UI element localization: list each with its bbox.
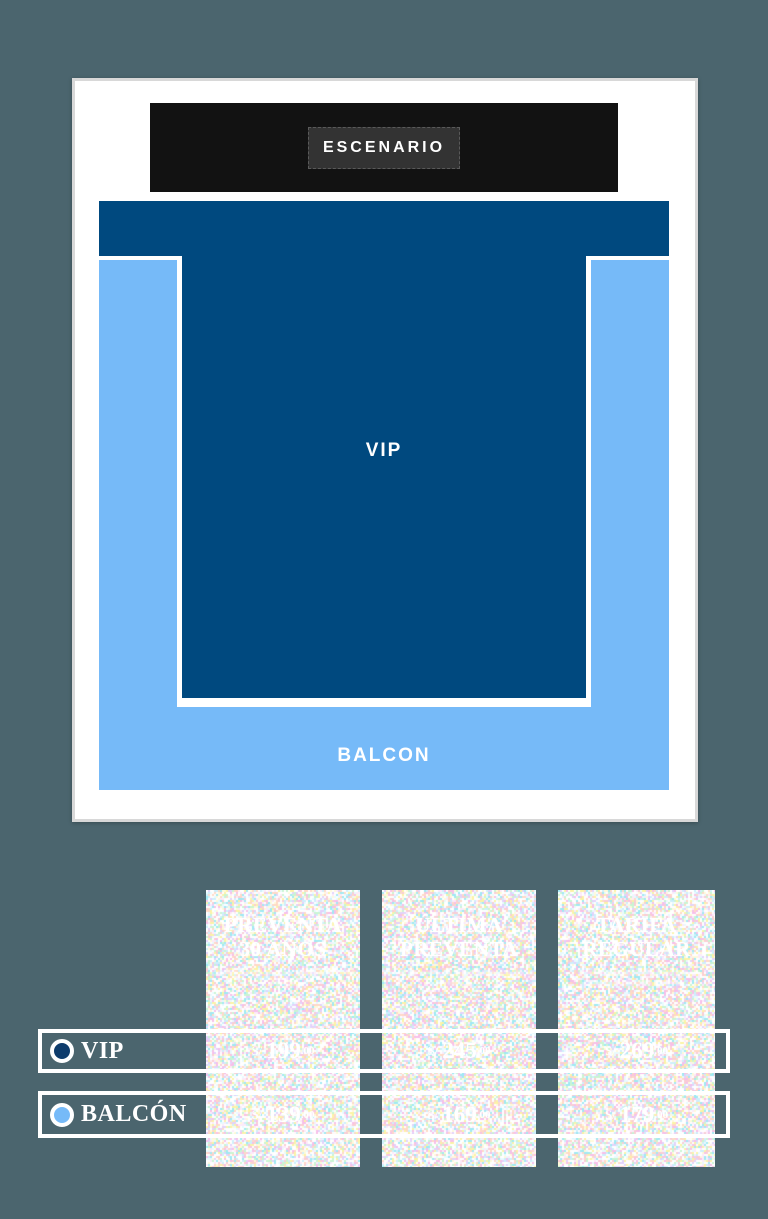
price-cents: .00 bbox=[301, 1045, 315, 1057]
tier-title: ÚLTIMA PREVENTA bbox=[382, 914, 536, 962]
price-vip-regular: S/ 269 .00 bbox=[558, 1033, 715, 1069]
price-cents: .00 bbox=[654, 1109, 668, 1121]
price-cents: .00 bbox=[477, 1109, 491, 1121]
price-currency: S/ bbox=[251, 1043, 262, 1059]
vip-marker-icon bbox=[50, 1039, 74, 1063]
vip-floor-section: VIP bbox=[182, 256, 586, 698]
balcon-marker-icon bbox=[50, 1103, 74, 1127]
price-currency: S/ bbox=[605, 1043, 616, 1059]
price-amount: 199 bbox=[266, 1038, 301, 1064]
price-vip-preventa: S/ 199 .00 bbox=[206, 1033, 360, 1069]
price-currency: S/ bbox=[251, 1107, 262, 1123]
price-vip-ultima: S/ 245 .00 bbox=[382, 1033, 536, 1069]
price-balcon-regular: S/ 179 .00 bbox=[558, 1095, 715, 1134]
price-balcon-ultima: S/ 169 .00 bbox=[382, 1095, 536, 1134]
tier-subtitle: DEL 01 DE MAYO AL 31 DE MAYO O AGOTAR ST… bbox=[382, 969, 536, 989]
tier-title: PREVENTA 30 AÑOS bbox=[206, 914, 360, 962]
price-row-vip: VIP S/ 199 .00 S/ 245 .00 S/ 269 .00 bbox=[38, 1029, 730, 1073]
price-currency: S/ bbox=[427, 1043, 438, 1059]
price-amount: 269 bbox=[620, 1038, 655, 1064]
vip-section-label: VIP bbox=[366, 440, 403, 462]
tier-title: TARIFA REGULAR bbox=[558, 914, 715, 962]
balcon-row-label: BALCÓN bbox=[81, 1101, 187, 1128]
stage: ESCENARIO bbox=[150, 103, 618, 192]
price-currency: S/ bbox=[427, 1107, 438, 1123]
price-row-balcon: BALCÓN S/ 139 .00 S/ 169 .00 S/ 179 .00 bbox=[38, 1091, 730, 1138]
balcon-bottom-section: BALCON bbox=[99, 707, 669, 790]
price-amount: 169 bbox=[442, 1102, 477, 1128]
price-cents: .00 bbox=[301, 1109, 315, 1121]
venue-map-card: ESCENARIO VIP BALCON bbox=[72, 78, 698, 822]
balcon-section-label: BALCON bbox=[337, 731, 430, 767]
vip-band-section bbox=[99, 201, 669, 256]
stage-label: ESCENARIO bbox=[323, 139, 445, 157]
vip-row-label: VIP bbox=[81, 1038, 124, 1065]
price-balcon-preventa: S/ 139 .00 bbox=[206, 1095, 360, 1134]
price-amount: 179 bbox=[620, 1102, 655, 1128]
stage-label-box: ESCENARIO bbox=[308, 127, 460, 169]
price-cents: .00 bbox=[477, 1045, 491, 1057]
price-currency: S/ bbox=[605, 1107, 616, 1123]
price-cents: .00 bbox=[654, 1045, 668, 1057]
price-amount: 245 bbox=[442, 1038, 477, 1064]
tier-subtitle: PRECIOS REGULARES VIGENTES HASTA EL DÍA … bbox=[558, 969, 715, 989]
price-amount: 139 bbox=[266, 1102, 301, 1128]
tier-subtitle: VÁLIDA HASTA EL 30 DE ABRIL O AGOTAR STO… bbox=[206, 969, 360, 989]
